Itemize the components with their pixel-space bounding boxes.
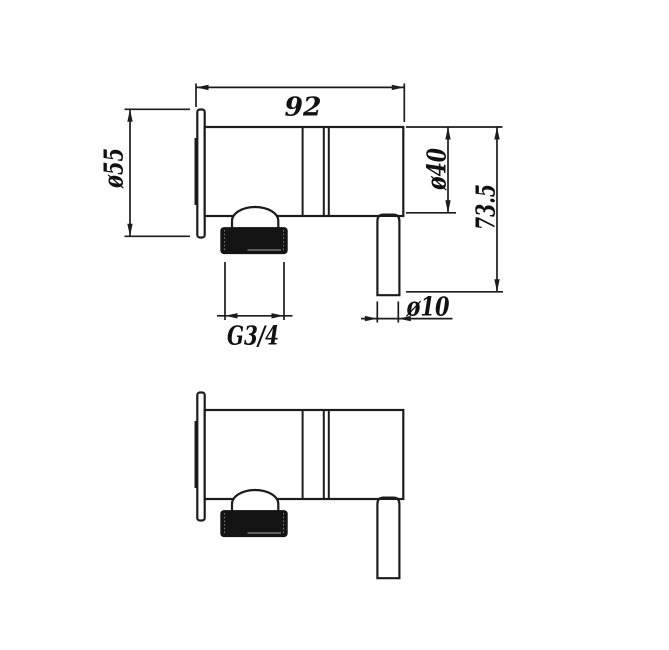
- outlet-pipe: [377, 215, 399, 296]
- front-view-plain: [196, 393, 404, 579]
- dim-label-overall-height: 73.5: [472, 184, 502, 230]
- valve-neck-dome: [232, 207, 278, 228]
- valve-technical-drawing: 92 ø55 ø40 73.5: [0, 0, 669, 650]
- dimension-flange-diameter: ø55: [100, 109, 191, 236]
- drawing-canvas: 92 ø55 ø40 73.5: [0, 0, 669, 650]
- dim-label-body-diameter: ø40: [423, 148, 453, 191]
- valve-outline: [196, 110, 404, 296]
- dimension-body-length: 92: [196, 84, 404, 123]
- wall-flange: [197, 110, 204, 238]
- dimension-outlet-diameter: ø10: [361, 293, 453, 323]
- dim-label-outlet-diameter: ø10: [406, 293, 450, 323]
- dim-label-flange-diameter: ø55: [100, 148, 130, 189]
- dimension-overall-height: 73.5: [406, 127, 503, 292]
- dimension-thread-size: G3/4: [217, 262, 293, 352]
- dim-label-thread-size: G3/4: [227, 322, 279, 352]
- dim-label-body-length: 92: [285, 93, 322, 123]
- valve-body: [205, 127, 404, 216]
- front-view-dimensioned: 92 ø55 ø40 73.5: [100, 84, 504, 352]
